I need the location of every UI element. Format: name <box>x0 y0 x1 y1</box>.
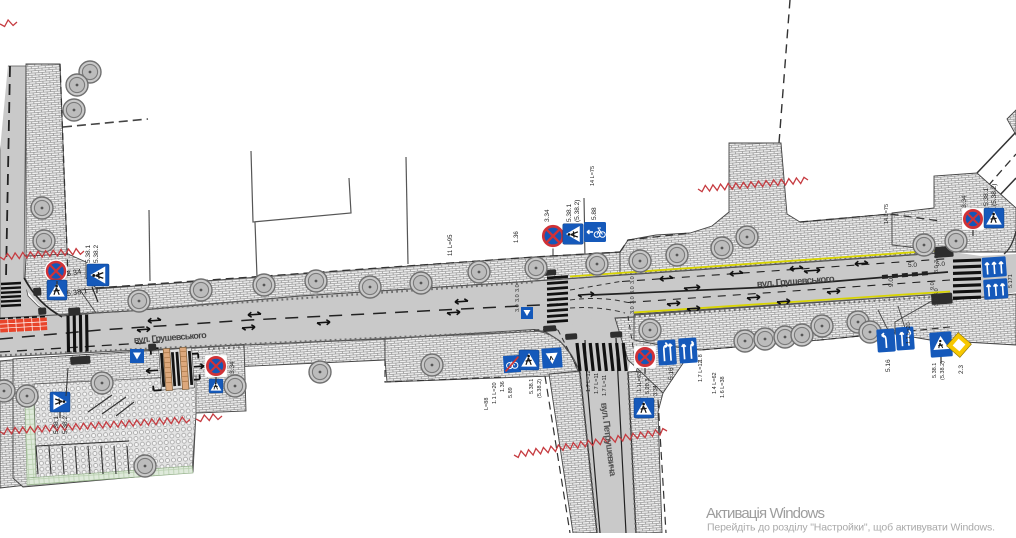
svg-text:5.0: 5.0 <box>908 262 917 269</box>
svg-text:1.1 L=20: 1.1 L=20 <box>492 382 498 404</box>
svg-text:1.36: 1.36 <box>514 231 520 243</box>
svg-text:L=88: L=88 <box>484 398 490 410</box>
svg-text:9.0: 9.0 <box>930 282 936 290</box>
svg-text:14 L=75: 14 L=75 <box>884 204 890 224</box>
svg-text:5.38.1: 5.38.1 <box>529 379 535 394</box>
svg-text:(5.38.2): (5.38.2) <box>537 379 543 398</box>
svg-text:1.4 L=62: 1.4 L=62 <box>712 372 718 394</box>
svg-text:5.38.1: 5.38.1 <box>932 363 938 378</box>
svg-text:3.34: 3.34 <box>229 361 236 374</box>
svg-text:(5.38.2): (5.38.2) <box>991 184 998 206</box>
svg-text:1.7 L=11: 1.7 L=11 <box>602 375 608 396</box>
svg-text:5.38.2: 5.38.2 <box>62 416 69 434</box>
svg-text:3.0: 3.0 <box>515 304 521 312</box>
svg-text:3.0: 3.0 <box>630 306 636 314</box>
svg-text:5.38.1: 5.38.1 <box>85 245 92 263</box>
svg-text:11 L=95: 11 L=95 <box>448 234 454 256</box>
svg-text:(5.38.2): (5.38.2) <box>940 361 946 380</box>
svg-text:5.38.2: 5.38.2 <box>93 245 100 263</box>
svg-text:5.16: 5.16 <box>668 367 675 380</box>
svg-text:5.38.1: 5.38.1 <box>53 416 60 434</box>
svg-text:5.88: 5.88 <box>591 207 598 220</box>
svg-text:1.8: 1.8 <box>698 354 704 362</box>
svg-text:1.7 L=12: 1.7 L=12 <box>586 370 592 392</box>
svg-text:2.3: 2.3 <box>958 365 965 374</box>
svg-text:3.34: 3.34 <box>653 385 659 396</box>
svg-text:3.0: 3.0 <box>934 255 940 263</box>
svg-text:3.0: 3.0 <box>630 286 636 294</box>
svg-text:1.1 L=20: 1.1 L=20 <box>906 322 912 344</box>
svg-text:3.34: 3.34 <box>544 209 551 222</box>
svg-text:3.0: 3.0 <box>630 276 636 284</box>
svg-text:3.0: 3.0 <box>515 284 521 292</box>
svg-text:(5.38.2): (5.38.2) <box>574 200 581 222</box>
svg-text:3.0: 3.0 <box>934 298 940 306</box>
svg-text:3.0: 3.0 <box>515 294 521 302</box>
svg-text:Активація Windows: Активація Windows <box>706 505 825 522</box>
svg-text:1.36: 1.36 <box>500 381 506 392</box>
svg-text:9.0: 9.0 <box>888 278 895 287</box>
svg-text:5.38.1: 5.38.1 <box>566 204 573 222</box>
svg-text:5.20.3: 5.20.3 <box>645 379 651 394</box>
svg-text:5.89: 5.89 <box>508 387 514 398</box>
svg-text:3.0: 3.0 <box>934 265 940 273</box>
svg-text:1.7 L=12: 1.7 L=12 <box>698 360 704 382</box>
svg-text:1.7 L=11: 1.7 L=11 <box>594 373 600 394</box>
svg-text:5.16: 5.16 <box>885 359 892 372</box>
svg-text:1.1L=63: 1.1L=63 <box>637 372 643 392</box>
svg-text:3.34: 3.34 <box>961 195 968 208</box>
svg-text:5.38.1: 5.38.1 <box>983 188 990 206</box>
svg-text:14 L=75: 14 L=75 <box>590 166 596 186</box>
svg-text:1.6 L=38: 1.6 L=38 <box>720 376 726 398</box>
svg-text:Перейдіть до розділу "Настройк: Перейдіть до розділу "Настройки", щоб ак… <box>707 522 995 534</box>
svg-text:3.0: 3.0 <box>630 296 636 304</box>
svg-text:5.171: 5.171 <box>1008 274 1014 288</box>
